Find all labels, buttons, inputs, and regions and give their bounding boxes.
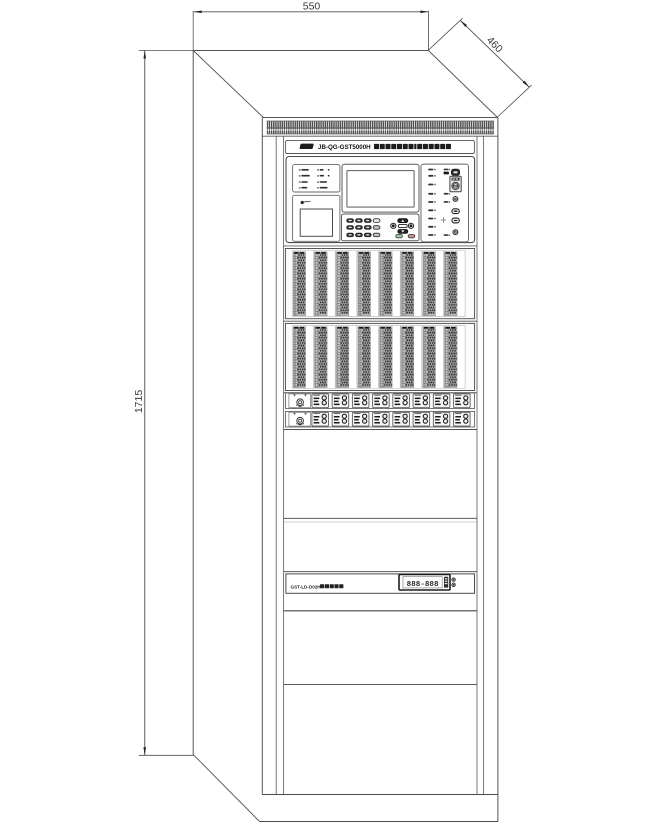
svg-text:550: 550 <box>303 1 321 13</box>
svg-text:1715: 1715 <box>133 390 145 414</box>
svg-text:888-888: 888-888 <box>407 581 439 589</box>
svg-text:JB-QG-GST5000H: JB-QG-GST5000H <box>318 144 371 151</box>
svg-text:GST-LD-D02H: GST-LD-D02H <box>291 584 322 589</box>
